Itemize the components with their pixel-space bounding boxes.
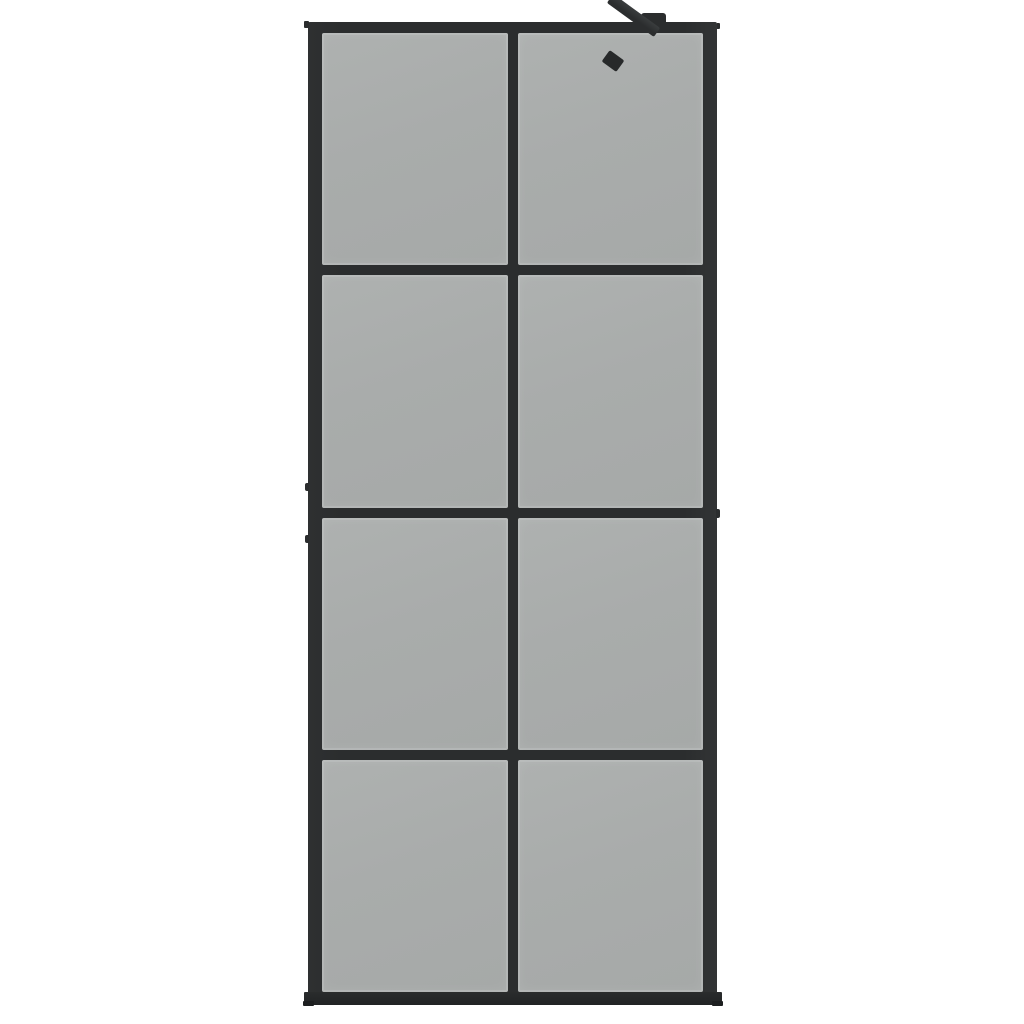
glass-pane-4 [518, 275, 704, 507]
shower-screen [308, 22, 717, 1003]
screen-frame [308, 22, 717, 1003]
top-left-corner-notch [304, 21, 309, 28]
glass-pane-7 [322, 760, 508, 992]
glass-pane-5 [322, 518, 508, 750]
glass-pane-1 [322, 33, 508, 265]
left-wall-mount-nub-2 [305, 535, 309, 543]
left-wall-mount-nub-1 [305, 483, 309, 491]
right-foot [712, 1001, 723, 1006]
glass-grid [308, 22, 717, 1003]
glass-pane-6 [518, 518, 704, 750]
right-wall-mount-nub [716, 509, 720, 518]
product-photo [0, 0, 1024, 1024]
left-foot [303, 1001, 314, 1006]
glass-pane-8 [518, 760, 704, 992]
glass-pane-3 [322, 275, 508, 507]
bottom-base-bar [304, 992, 722, 1005]
top-right-corner-tick [717, 23, 720, 29]
